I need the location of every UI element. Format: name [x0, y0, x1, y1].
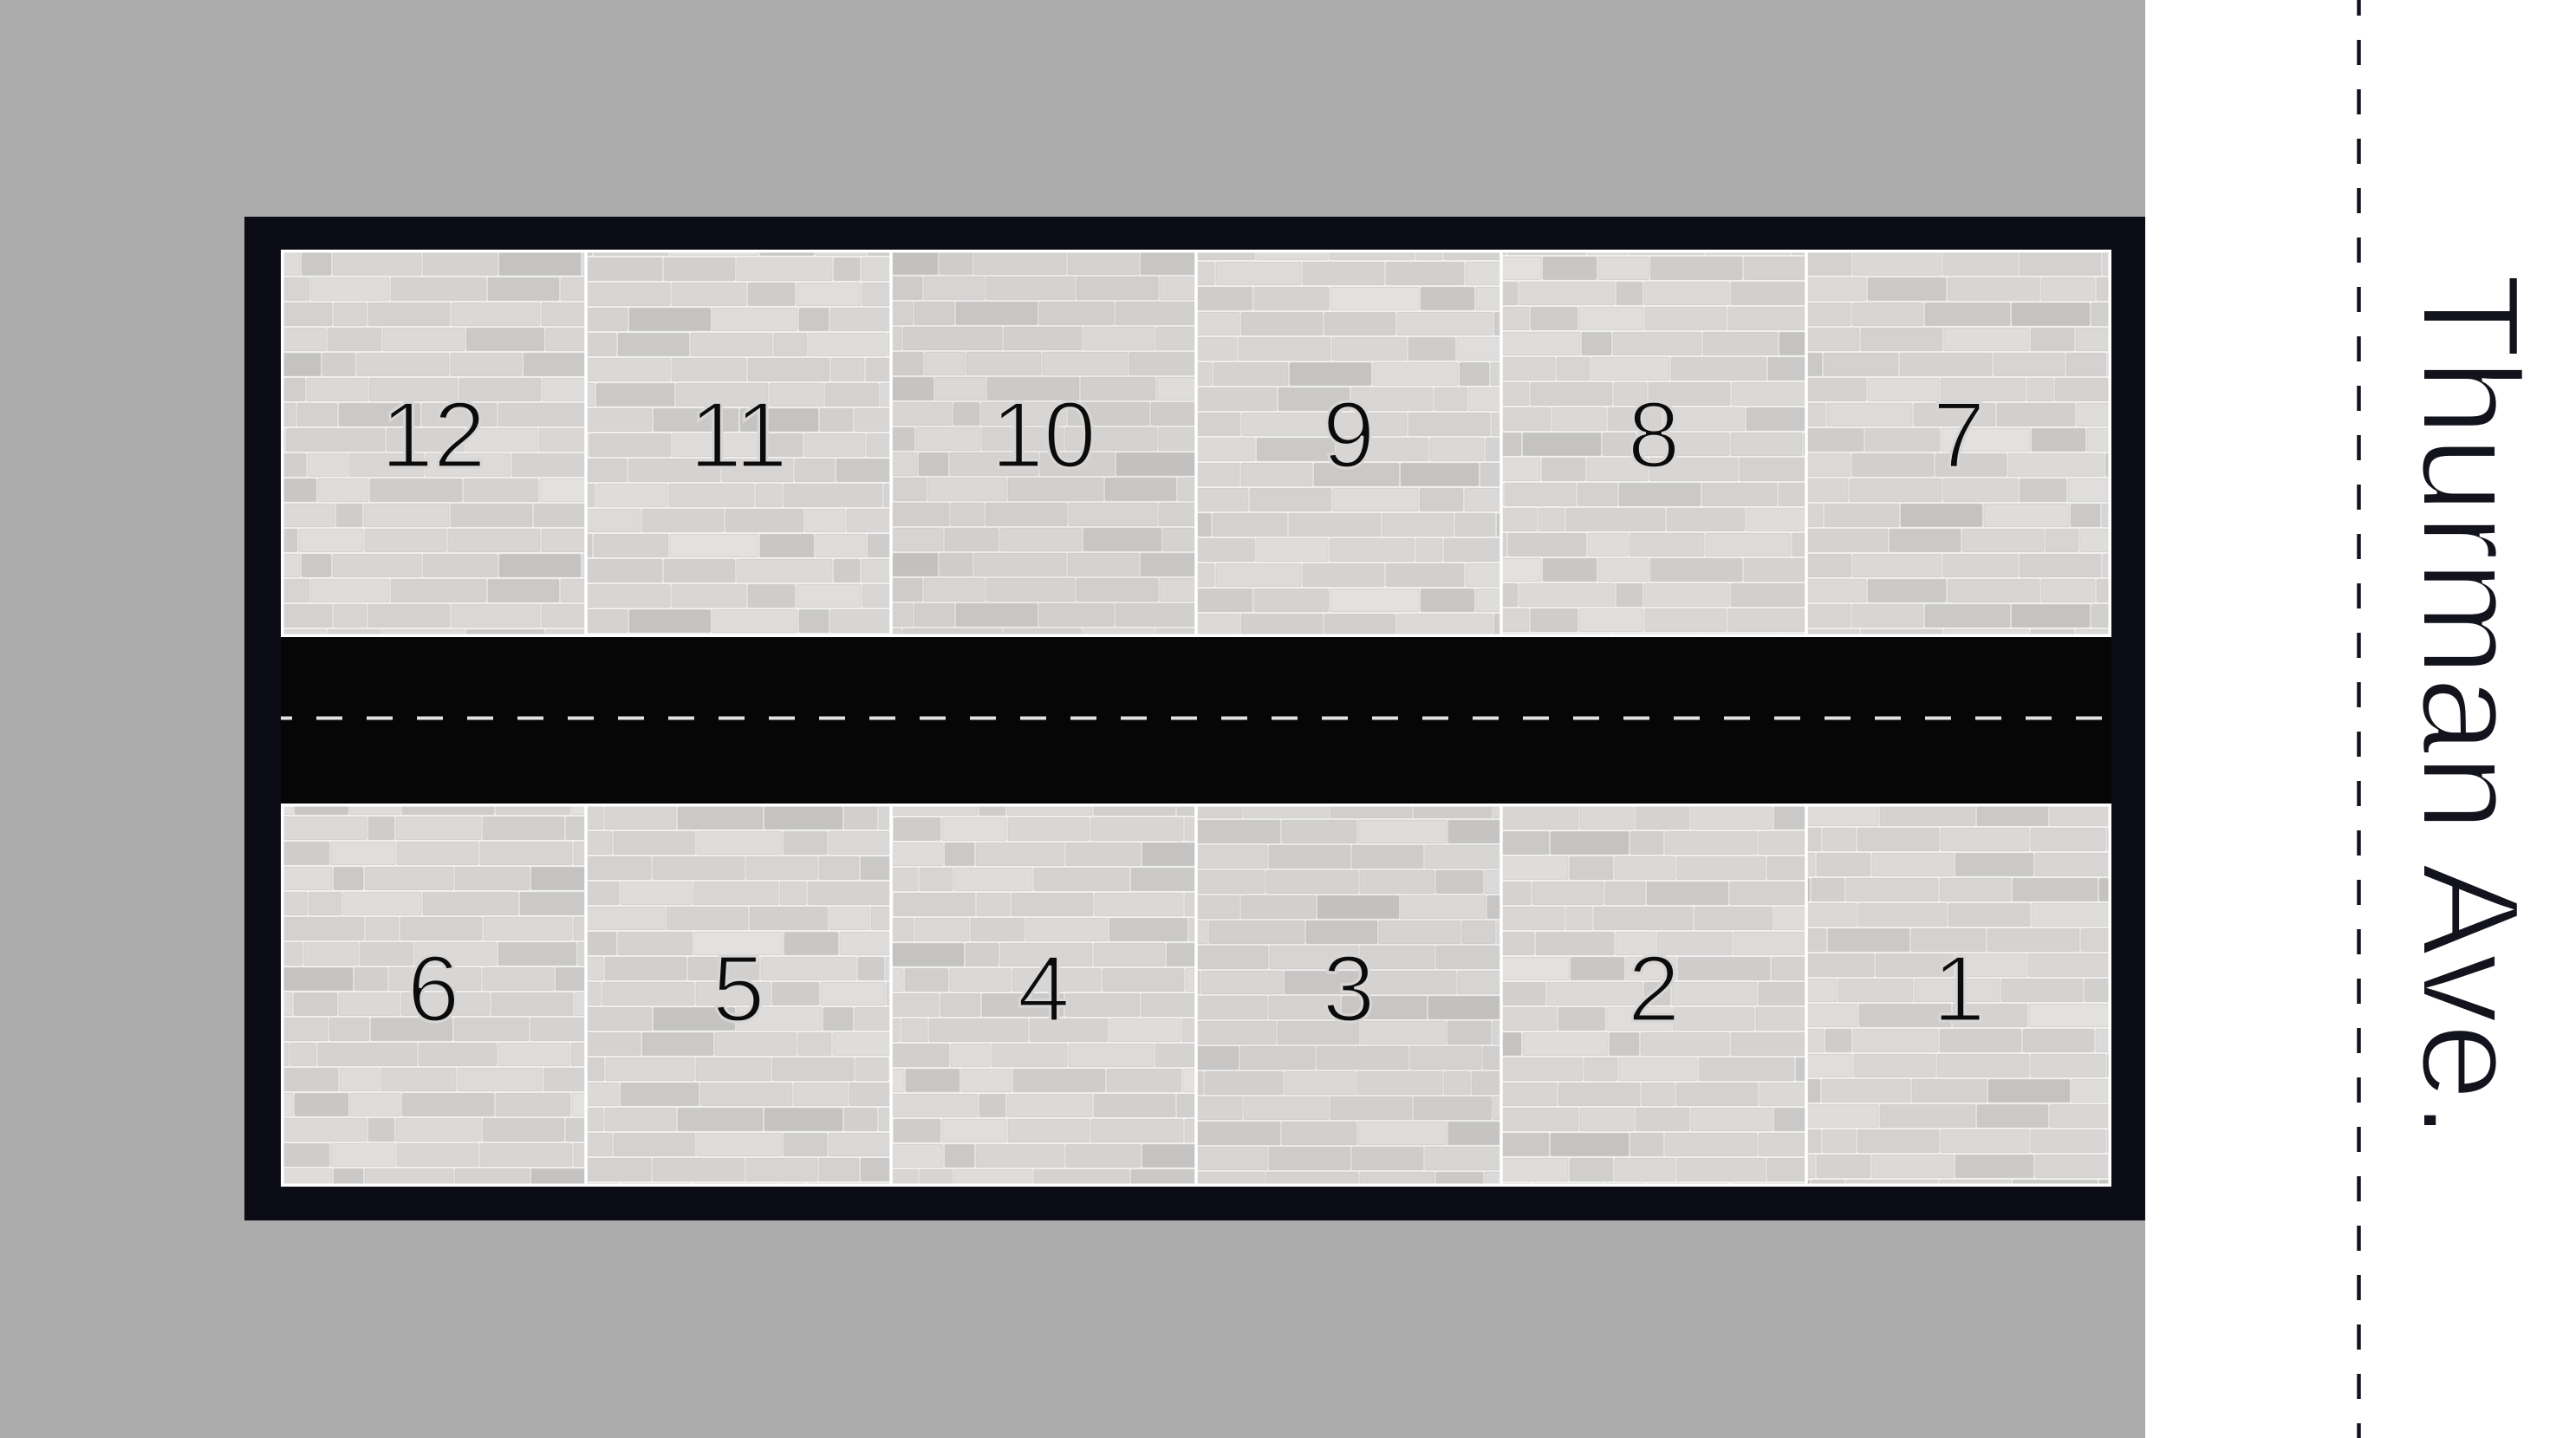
svg-text:9: 9 [1323, 382, 1376, 488]
svg-text:1: 1 [1933, 936, 1986, 1042]
svg-text:8: 8 [1628, 382, 1681, 488]
svg-text:5: 5 [712, 936, 765, 1042]
svg-text:7: 7 [1933, 382, 1986, 488]
svg-text:10: 10 [991, 382, 1096, 488]
svg-text:12: 12 [381, 382, 485, 488]
svg-text:Thurman Ave.: Thurman Ave. [2392, 273, 2548, 1139]
svg-text:4: 4 [1018, 936, 1070, 1042]
svg-text:6: 6 [407, 936, 460, 1042]
svg-text:3: 3 [1323, 936, 1376, 1042]
svg-text:11: 11 [689, 382, 787, 488]
svg-text:2: 2 [1628, 936, 1681, 1042]
